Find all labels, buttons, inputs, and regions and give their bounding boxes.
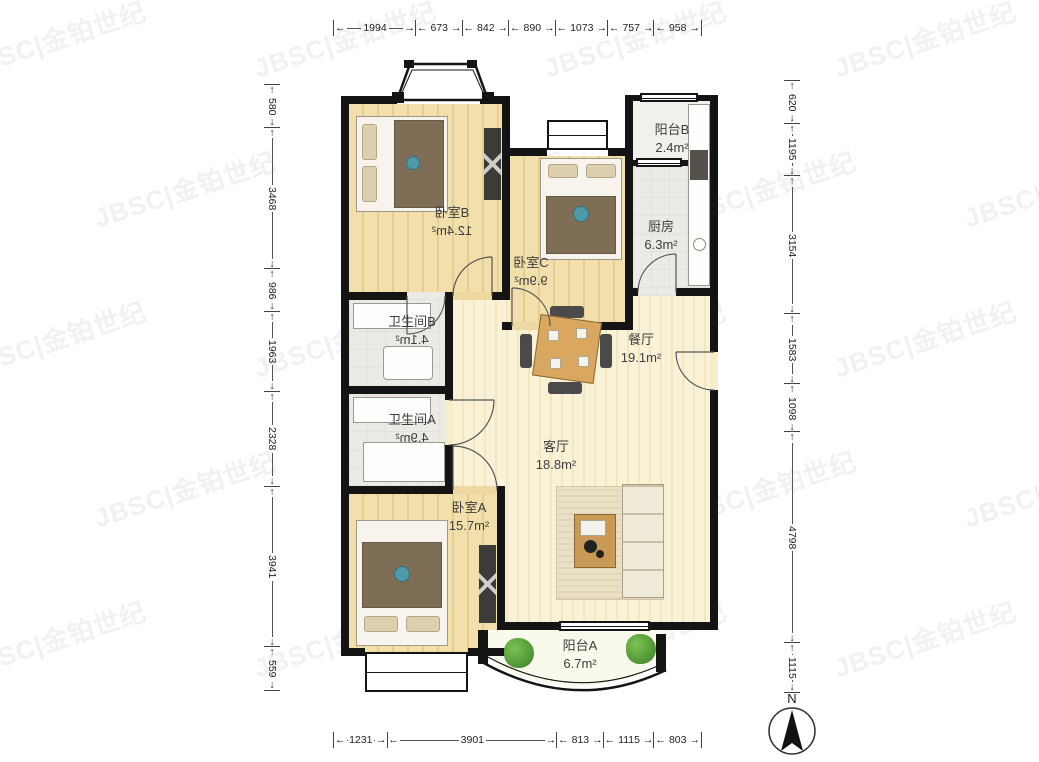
dimension-line (272, 322, 273, 338)
room-label-balcony-a: 阳台A 6.7m² (563, 637, 598, 673)
dining-plate (576, 328, 587, 339)
room-name: 厨房 (644, 218, 677, 236)
dimension-line: ← (557, 735, 570, 746)
compass-icon (766, 705, 818, 757)
dimension-line: ↑ (268, 312, 275, 323)
wall-segment (710, 390, 718, 630)
door-opening (638, 288, 676, 296)
dimension-line (792, 363, 793, 374)
watermark-text: JBSC|金铂世纪 (959, 442, 1039, 536)
door-opening (445, 400, 453, 445)
wall-segment (656, 634, 666, 672)
dimension-value: 1231 (347, 734, 374, 746)
entry-door-opening (710, 352, 718, 390)
wall-segment (445, 292, 453, 300)
dimension-line: ↑ (788, 176, 795, 187)
wall-segment (710, 95, 718, 352)
coffee-tray (580, 520, 606, 536)
dimension-line: ← (416, 23, 429, 34)
wall-segment (492, 292, 510, 300)
dimension-line: ↑ (268, 128, 275, 139)
dimension-line: ← (463, 23, 476, 34)
wall-segment (341, 96, 397, 104)
dimension-line: ← (509, 23, 522, 34)
dimension-value: 620 (786, 92, 798, 114)
room-name: 客厅 (536, 438, 576, 456)
bed-c-pillow (548, 164, 578, 178)
dimension-line: ↑ (268, 647, 275, 658)
kettle (584, 540, 597, 553)
dimension-value: 4798 (786, 524, 798, 551)
dimension-segment: ←803→ (653, 732, 702, 748)
bed-b-cushion (406, 156, 420, 170)
dining-plate (550, 358, 561, 369)
dimension-value: 803 (667, 734, 689, 746)
dimension-line (792, 187, 793, 232)
dimension-segment: ↑3468↓ (264, 127, 280, 270)
dimension-line: ← (604, 735, 617, 746)
dimension-line: → (689, 23, 702, 34)
wall-segment (478, 630, 488, 664)
bath-a-counter (363, 442, 445, 482)
dimension-segment: ←958→ (653, 20, 702, 36)
north-compass: N (762, 692, 822, 756)
dimension-value: 958 (667, 22, 689, 34)
kettle-small (596, 550, 604, 558)
dimension-line: ← (556, 23, 569, 34)
dimension-value: 757 (620, 22, 642, 34)
dimension-line: ↑ (268, 85, 275, 96)
dimension-line: ↑ (268, 269, 275, 280)
dimension-line (347, 28, 362, 29)
dimension-line: ↑ (268, 487, 275, 498)
dimension-segment: ↑3941↓ (264, 486, 280, 648)
room-label-bedroom-c: 卧室C 9.9m² (513, 254, 548, 290)
dimension-line (400, 740, 459, 741)
dimension-line: ↑ (788, 384, 795, 395)
dimension-line: ↑ (788, 81, 795, 92)
dimension-line (792, 259, 793, 304)
dimension-value: 842 (475, 22, 497, 34)
room-label-bedroom-b: 卧室B 12.4m² (432, 204, 472, 240)
dining-chair (520, 334, 532, 368)
bed-a-cushion (394, 566, 410, 582)
watermark-text: JBSC|金铂世纪 (539, 0, 731, 85)
dimension-line: ← (388, 735, 401, 746)
room-name: 卫生间B (388, 313, 436, 331)
dimension-segment: ←3901→ (387, 732, 558, 748)
watermark-text: JBSC|金铂世纪 (829, 0, 1021, 85)
door-opening (407, 292, 445, 300)
sofa (622, 484, 664, 598)
room-area: 4.1m² (388, 331, 436, 349)
dimension-line (792, 325, 793, 336)
bed-c-cushion (573, 206, 589, 222)
dimension-segment: ↑1115↓ (784, 642, 800, 693)
dimension-line (792, 443, 793, 524)
door-opening (453, 486, 497, 494)
dimension-segment: ↑2328↓ (264, 391, 280, 487)
dimension-value: 1963 (266, 338, 278, 365)
sliding-door-balcony-a (559, 621, 650, 631)
room-area: 6.3m² (644, 236, 677, 254)
dimension-segment: ↑3154↓ (784, 175, 800, 314)
bed-b-pillow (362, 124, 377, 160)
dimension-value: 1073 (568, 22, 595, 34)
wall-segment (497, 622, 559, 630)
watermark-text: JBSC|金铂世纪 (0, 592, 151, 686)
dimension-line: ← (654, 735, 667, 746)
room-area: 6.7m² (563, 655, 598, 673)
dimension-value: 1115 (616, 734, 642, 746)
dimension-value: 1195 (786, 136, 798, 163)
room-name: 阳台B (655, 121, 690, 139)
dimension-segment: ↑4798↓ (784, 431, 800, 643)
dimension-value: 559 (266, 658, 278, 680)
dimension-line (272, 497, 273, 553)
wall-segment (341, 648, 365, 656)
wardrobe-bedroom-a (479, 545, 496, 623)
room-label-balcony-b: 阳台B 2.4m² (655, 121, 690, 157)
dimension-value: 986 (266, 280, 278, 302)
watermark-text: JBSC|金铂世纪 (829, 592, 1021, 686)
dimension-segment: ←1231→ (333, 732, 388, 748)
dimension-segment: ←1994→ (333, 20, 416, 36)
bed-a-pillow (406, 616, 440, 632)
wall-segment (445, 300, 453, 400)
dimension-segment: ↑1098↓ (784, 383, 800, 432)
dimension-segment: ↑620↓ (784, 80, 800, 124)
dimension-value: 890 (522, 22, 544, 34)
dimension-line (272, 138, 273, 185)
bed-b-pillow (362, 166, 377, 202)
wall-segment (341, 96, 349, 656)
watermark-text: JBSC|金铂世纪 (959, 142, 1039, 236)
dining-chair (600, 334, 612, 368)
dimension-segment: ←757→ (607, 20, 655, 36)
dimension-line (272, 402, 273, 425)
room-name: 卫生间A (388, 411, 436, 429)
wall-segment (676, 288, 718, 296)
wall-segment (650, 622, 718, 630)
dimension-line (272, 453, 273, 476)
dimension-line: ↑ (788, 124, 795, 135)
dimension-value: 1115 (786, 655, 798, 681)
dimension-segment: ↑1963↓ (264, 311, 280, 392)
dimension-segment: ↑1583↓ (784, 313, 800, 384)
kitchen-stove (690, 150, 708, 180)
room-label-bathroom-a: 卫生间A 4.9m² (388, 411, 436, 447)
ruler-bottom: ←1231→←3901→←813→←1115→←803→ (333, 732, 701, 748)
dimension-line (486, 740, 545, 741)
bed-c-pillow (586, 164, 616, 178)
dimension-segment: ←1115→ (603, 732, 655, 748)
dining-table (532, 314, 602, 384)
dining-plate (548, 330, 559, 341)
bay-window-bedroom-b (397, 64, 488, 100)
wall-segment (497, 486, 505, 630)
dimension-value: 2328 (266, 425, 278, 452)
kitchen-counter (688, 104, 710, 286)
bed-c-blanket (546, 196, 616, 254)
dimension-segment: ↑1195↓ (784, 123, 800, 176)
room-name: 卧室B (432, 204, 472, 222)
dimension-line (272, 581, 273, 637)
dimension-line: → (689, 735, 702, 746)
wall-segment (502, 148, 547, 156)
dimension-line: ↑ (788, 314, 795, 325)
room-name: 阳台A (563, 637, 598, 655)
wall-segment (341, 386, 453, 394)
room-area: 4.9m² (388, 429, 436, 447)
bed-a-pillow (364, 616, 398, 632)
watermark-text: JBSC|金铂世纪 (0, 0, 151, 85)
room-area: 12.4m² (432, 222, 472, 240)
room-name: 餐厅 (621, 331, 661, 349)
room-label-kitchen: 厨房 6.3m² (644, 218, 677, 254)
dimension-line: ← (608, 23, 621, 34)
room-area: 19.1m² (621, 349, 661, 367)
room-label-bathroom-b: 卫生间B 4.1m² (388, 313, 436, 349)
dimension-value: 3901 (459, 734, 486, 746)
room-name: 卧室C (513, 254, 548, 272)
window-balcony-b (640, 93, 698, 102)
room-area: 18.8m² (536, 456, 576, 474)
wall-segment (341, 292, 407, 300)
plant (626, 634, 656, 664)
dimension-value: 3468 (266, 185, 278, 212)
watermark-text: JBSC|金铂世纪 (0, 292, 151, 386)
dimension-line: ← (654, 23, 667, 34)
bath-b-toilet (383, 346, 433, 380)
room-label-living: 客厅 18.8m² (536, 438, 576, 474)
watermark-text: JBSC|金铂世纪 (249, 0, 441, 85)
dimension-value: 580 (266, 96, 278, 118)
ruler-right: ↑620↓↑1195↓↑3154↓↑1583↓↑1098↓↑4798↓↑1115… (784, 80, 800, 692)
dimension-segment: ←673→ (415, 20, 463, 36)
dimension-value: 1583 (786, 336, 798, 363)
plant (504, 638, 534, 668)
window-kitchen-balcony (636, 158, 682, 167)
wall-segment (625, 288, 638, 296)
room-area: 2.4m² (655, 139, 690, 157)
dimension-segment: ↑559↓ (264, 646, 280, 691)
dimension-line (272, 212, 273, 259)
watermark-text: JBSC|金铂世纪 (89, 442, 281, 536)
dimension-segment: ←890→ (508, 20, 556, 36)
dimension-line: ↓ (268, 680, 275, 691)
floorplan-page: { "watermark": { "text": "JBSC|金铂世纪" }, … (0, 0, 1039, 757)
bay-window-bedroom-c (547, 120, 608, 150)
dimension-value: 3154 (786, 232, 798, 259)
dimension-segment: ↑986↓ (264, 268, 280, 312)
room-name: 卧室A (449, 499, 489, 517)
dimension-line: ← (334, 735, 347, 746)
dimension-segment: ←842→ (462, 20, 510, 36)
dimension-segment: ↑580↓ (264, 84, 280, 128)
dimension-line (389, 28, 404, 29)
dimension-segment: ←1073→ (555, 20, 608, 36)
dimension-segment: ←813→ (556, 732, 604, 748)
wall-segment (341, 486, 453, 494)
dimension-value: 1098 (786, 395, 798, 422)
dimension-value: 673 (428, 22, 450, 34)
watermark-text: JBSC|金铂世纪 (89, 142, 281, 236)
dimension-line: ↑ (788, 432, 795, 443)
room-label-dining: 餐厅 19.1m² (621, 331, 661, 367)
bay-window-bedroom-a (365, 652, 468, 692)
ruler-top: ←1994→←673→←842→←890→←1073→←757→←958→ (333, 20, 701, 36)
wall-segment (502, 322, 512, 330)
door-opening (453, 292, 492, 300)
dimension-line: ↑ (788, 643, 795, 654)
room-label-bedroom-a: 卧室A 15.7m² (449, 499, 489, 535)
dimension-value: 813 (570, 734, 592, 746)
dimension-line (272, 365, 273, 381)
dimension-value: 1994 (361, 22, 388, 34)
kitchen-sink (693, 238, 706, 251)
room-area: 9.9m² (513, 272, 548, 290)
dimension-line: ↑ (268, 392, 275, 403)
north-label: N (762, 692, 822, 705)
watermark-text: JBSC|金铂世纪 (829, 292, 1021, 386)
ruler-left: ↑580↓↑3468↓↑986↓↑1963↓↑2328↓↑3941↓↑559↓ (264, 84, 280, 690)
room-area: 15.7m² (449, 517, 489, 535)
dimension-value: 3941 (266, 553, 278, 580)
wardrobe-bedroom-b (484, 128, 501, 200)
wall-segment (502, 96, 510, 300)
dimension-line (792, 551, 793, 632)
dining-plate (578, 356, 589, 367)
dimension-line: ← (334, 23, 347, 34)
dining-chair (548, 382, 582, 394)
